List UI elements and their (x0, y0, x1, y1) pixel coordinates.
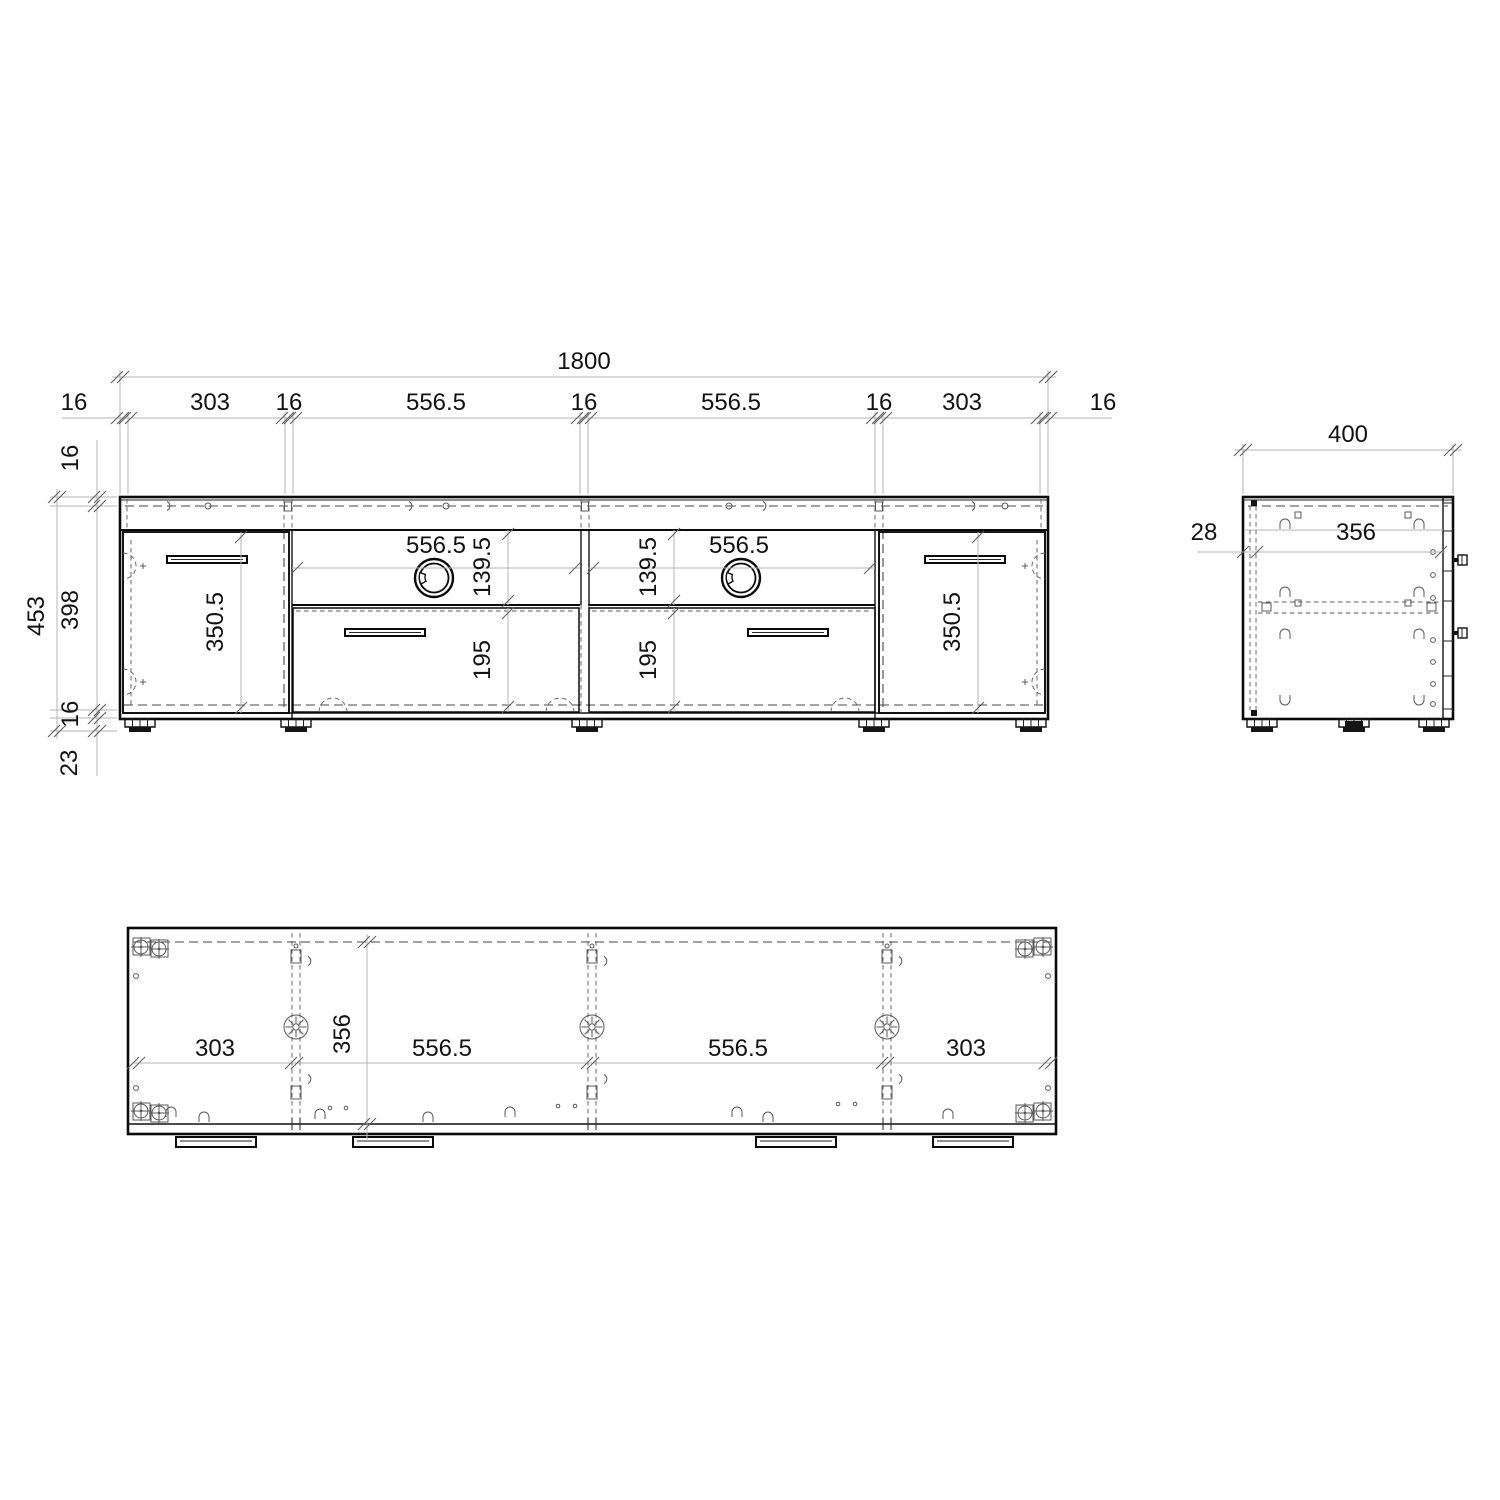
drawer-front-right (589, 608, 875, 712)
handle-drawer-left-top (353, 1137, 433, 1147)
front-feet (125, 719, 1046, 732)
cam-bolt-icon (1453, 555, 1467, 565)
dim-side-depth: 400 (1328, 421, 1368, 448)
cable-grommet-left-icon (415, 559, 453, 597)
dim-front-chain-3: 556.5 (406, 389, 466, 416)
front-cabinet-outline (120, 497, 1048, 719)
cam-bolt-icon (1453, 628, 1467, 638)
dim-front-chain-8: 16 (1090, 389, 1117, 416)
front-partitions (284, 530, 883, 719)
dim-front-drawer-left-height: 195 (469, 640, 496, 680)
handle-door-right-top (933, 1137, 1013, 1147)
hinge-cup-icon (1032, 669, 1045, 695)
hinge-plate-icon (131, 1101, 151, 1121)
hinge-cup-icon (123, 669, 136, 695)
handle-door-left-top (176, 1137, 256, 1147)
technical-drawing-canvas: 1800 16 303 16 556.5 16 556.5 16 303 16 (0, 0, 1500, 1500)
dim-front-door-left-height: 350.5 (202, 592, 229, 652)
cam-lock-icon (875, 1015, 899, 1039)
side-dimensions: 400 28 356 (1191, 421, 1462, 558)
drawer-front-left (293, 608, 579, 712)
dim-front-vchain-1: 398 (57, 590, 84, 630)
cam-lock-icon (284, 1015, 308, 1039)
hinge-cup-icon (1032, 553, 1045, 579)
front-dimensions-top: 1800 16 303 16 556.5 16 556.5 16 303 16 (61, 348, 1117, 494)
dim-front-shelf-left-width: 556.5 (406, 532, 466, 559)
dim-front-shelf-left-height: 139.5 (469, 537, 496, 597)
hinge-plate-icon (1033, 937, 1053, 957)
top-handles (176, 1137, 1013, 1147)
dim-front-chain-1: 303 (190, 389, 230, 416)
dim-front-vchain-0: 16 (57, 445, 84, 472)
dim-front-drawer-right-height: 195 (635, 640, 662, 680)
hinge-plate-icon (131, 937, 151, 957)
dim-front-overall-width: 1800 (557, 348, 610, 375)
top-view: 303 556.5 556.5 303 356 (127, 928, 1057, 1147)
dim-front-shelf-right-height: 139.5 (635, 537, 662, 597)
top-partition-lanes (292, 933, 891, 1124)
side-view: 400 28 356 (1191, 421, 1467, 732)
side-drawer-rails (1258, 602, 1440, 613)
dim-top-chain-3: 303 (946, 1035, 986, 1062)
hinge-plate-icon (1015, 1103, 1035, 1123)
dim-front-chain-4: 16 (571, 389, 598, 416)
handle-drawer-left (345, 629, 425, 636)
dim-top-inner-depth: 356 (329, 1014, 356, 1054)
dim-side-inner-depth: 356 (1336, 519, 1376, 546)
dim-front-vchain-3: 23 (56, 750, 83, 777)
front-view: 1800 16 303 16 556.5 16 556.5 16 303 16 (23, 348, 1116, 776)
top-front-edge-fittings (166, 1102, 953, 1122)
dim-front-door-right-height: 350.5 (939, 592, 966, 652)
side-feet (1247, 719, 1449, 732)
front-dimensions-interior: 556.5 556.5 139.5 139.5 350.5 350.5 195 … (202, 528, 984, 714)
dim-front-chain-2: 16 (276, 389, 303, 416)
cable-grommet-right-icon (722, 559, 760, 597)
handle-door-left (167, 556, 247, 563)
dim-front-vchain-2: 16 (57, 701, 84, 728)
dim-top-chain-1: 556.5 (412, 1035, 472, 1062)
dim-front-shelf-right-width: 556.5 (709, 532, 769, 559)
cam-lock-icon (580, 1015, 604, 1039)
hinge-cup-icon (123, 553, 136, 579)
dim-side-front-offset: 28 (1191, 519, 1218, 546)
dim-front-chain-6: 16 (866, 389, 893, 416)
furniture-technical-drawing-page: 1800 16 303 16 556.5 16 556.5 16 303 16 (0, 0, 1500, 1500)
handle-door-right (925, 556, 1005, 563)
dim-top-chain-0: 303 (195, 1035, 235, 1062)
dim-front-chain-7: 303 (942, 389, 982, 416)
dim-front-chain-5: 556.5 (701, 389, 761, 416)
handle-drawer-right-top (756, 1137, 836, 1147)
dim-front-overall-height: 453 (23, 596, 50, 636)
front-top-rail-fittings (127, 499, 1041, 529)
front-dimensions-left: 453 16 398 16 23 (23, 440, 117, 776)
hinge-plate-icon (1033, 1101, 1053, 1121)
top-lane-fittings (284, 944, 902, 1130)
handle-drawer-right (748, 629, 828, 636)
dim-top-chain-2: 556.5 (708, 1035, 768, 1062)
dim-front-chain-0: 16 (61, 389, 88, 416)
